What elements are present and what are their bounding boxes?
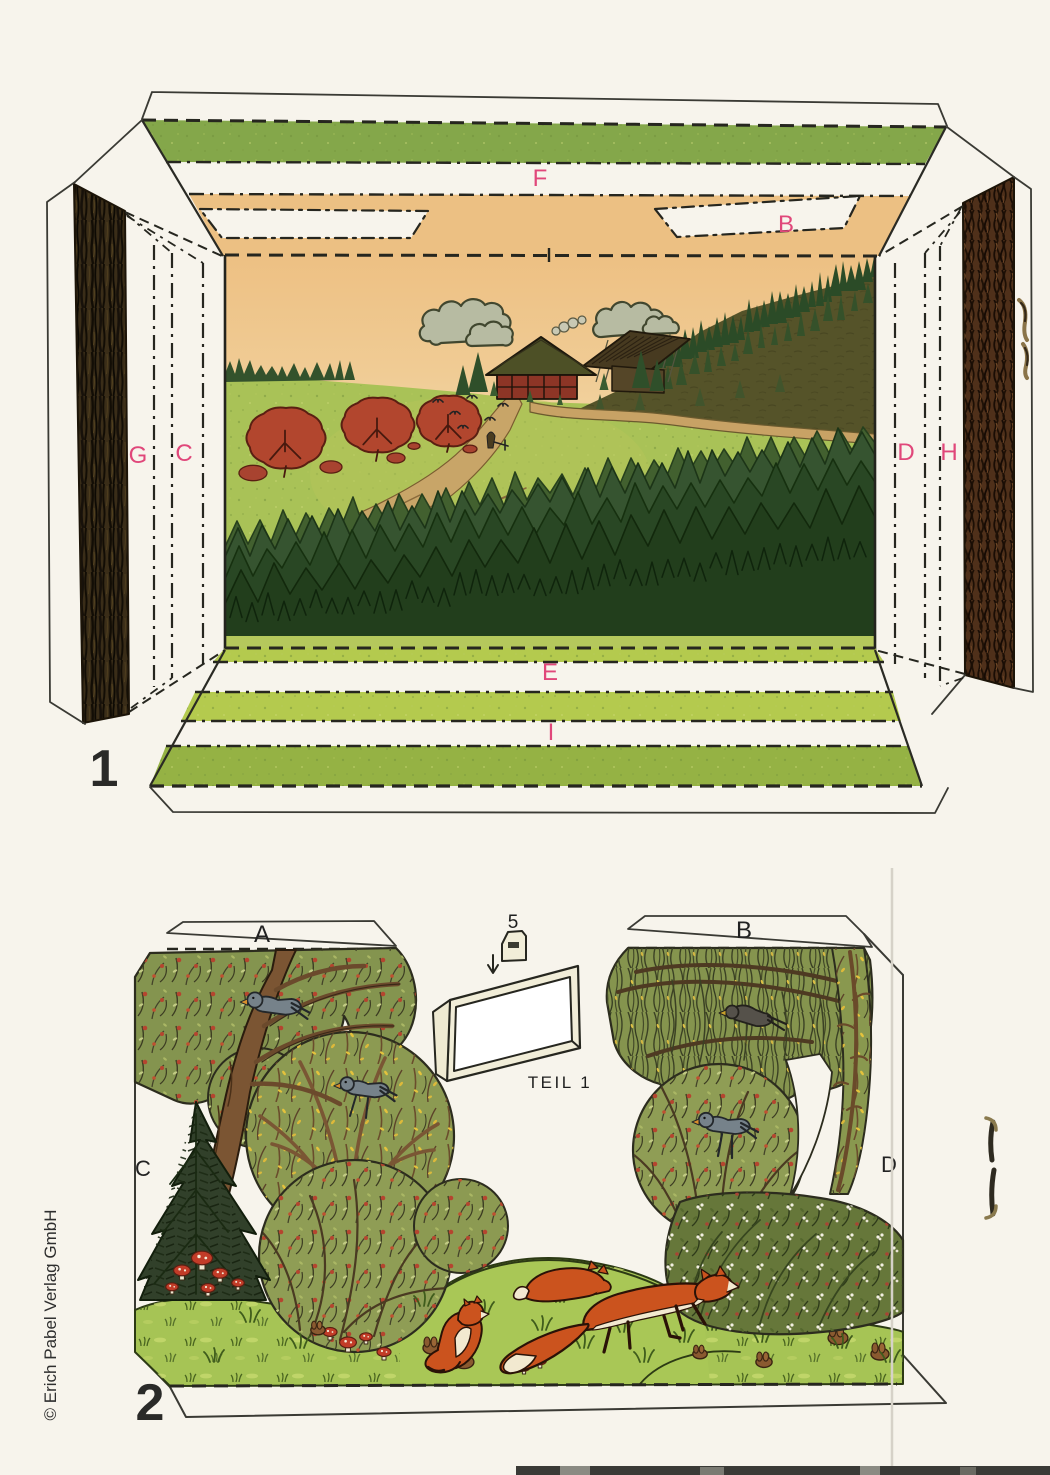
- svg-text:C: C: [175, 440, 192, 467]
- svg-text:D: D: [881, 1152, 897, 1177]
- svg-text:1: 1: [90, 740, 119, 798]
- svg-text:A: A: [254, 921, 270, 948]
- svg-text:G: G: [129, 442, 148, 469]
- svg-text:F: F: [533, 165, 548, 192]
- svg-text:H: H: [940, 439, 957, 466]
- svg-text:© Erich Pabel Verlag GmbH: © Erich Pabel Verlag GmbH: [41, 1210, 60, 1421]
- svg-text:C: C: [135, 1156, 151, 1181]
- svg-text:2: 2: [136, 1374, 165, 1432]
- svg-text:D: D: [897, 439, 914, 466]
- svg-text:5: 5: [508, 912, 519, 933]
- svg-text:B: B: [736, 917, 752, 944]
- svg-text:TEIL 1: TEIL 1: [528, 1073, 592, 1092]
- svg-text:E: E: [542, 659, 558, 686]
- svg-text:B: B: [778, 211, 794, 238]
- svg-text:I: I: [548, 719, 555, 746]
